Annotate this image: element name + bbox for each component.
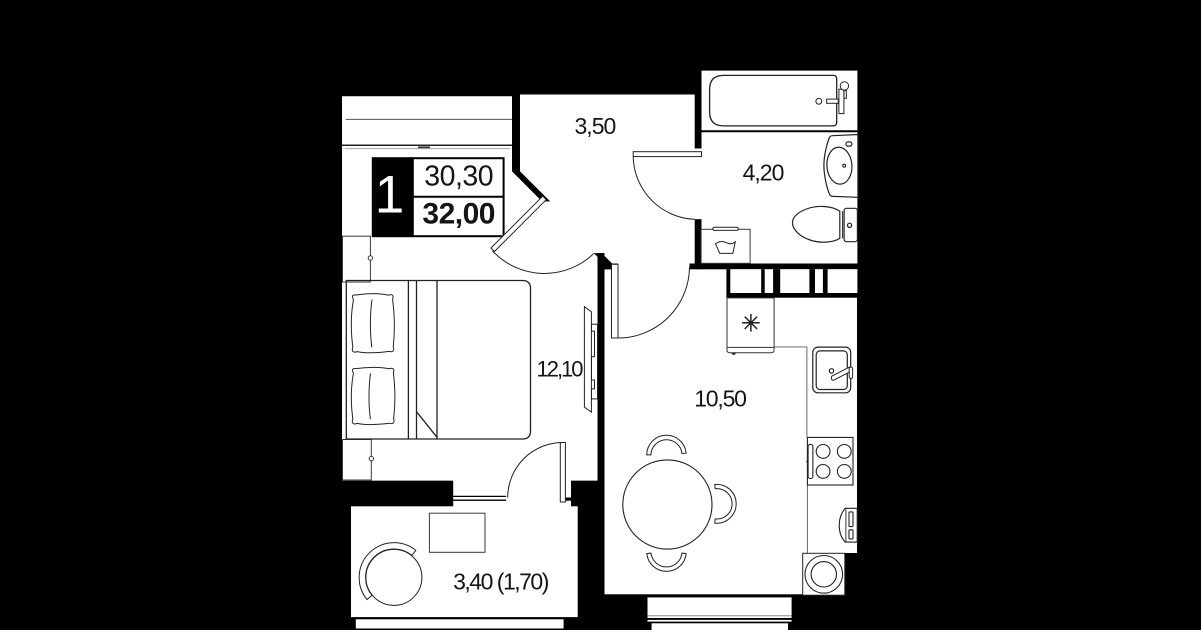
svg-text:1: 1 bbox=[375, 166, 404, 225]
svg-text:32,00: 32,00 bbox=[422, 198, 495, 231]
svg-text:3,50: 3,50 bbox=[575, 113, 616, 139]
svg-text:3,40 (1,70): 3,40 (1,70) bbox=[453, 569, 549, 595]
svg-text:4,20: 4,20 bbox=[743, 159, 784, 185]
svg-text:30,30: 30,30 bbox=[424, 161, 493, 193]
svg-text:10,50: 10,50 bbox=[694, 386, 746, 412]
svg-text:12,10: 12,10 bbox=[536, 357, 583, 382]
